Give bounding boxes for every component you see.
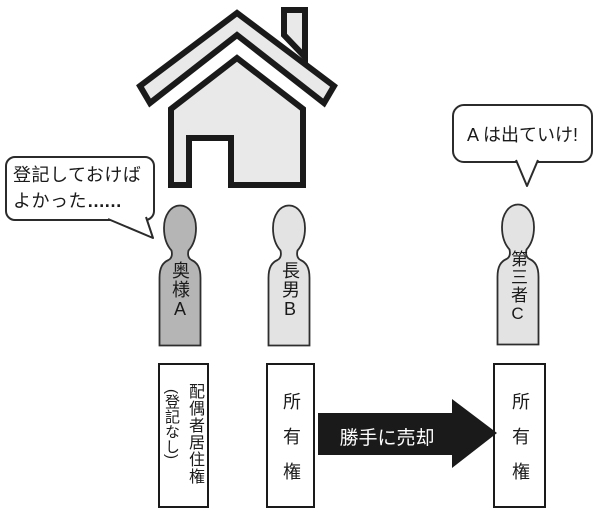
wife-bubble-line2: よかった……: [13, 188, 147, 214]
wife-bubble-line1: 登記しておけば: [13, 162, 147, 188]
third-party-bubble-text: A は出ていけ!: [467, 121, 578, 147]
house-body-shape: [171, 58, 303, 185]
house-icon: [140, 10, 334, 185]
roof-shape: [140, 13, 334, 103]
spousal-residence-right-box: 配偶者居住権 (登記なし): [158, 363, 209, 508]
eldest-son-label: 長男B: [277, 261, 303, 320]
third-party-label: 第三者C: [505, 250, 530, 324]
spousal-residence-right-line1: 配偶者居住権: [182, 365, 207, 506]
chimney-shape: [284, 10, 305, 57]
wife-label: 奥様A: [167, 261, 193, 320]
spousal-residence-right-text: 配偶者居住権 (登記なし): [160, 365, 207, 506]
wife-speech-bubble: 登記しておけば よかった……: [5, 156, 155, 221]
third-party-ownership-box: 所有権: [493, 363, 546, 508]
third-party-bubble-tail: [516, 160, 538, 186]
third-party-speech-bubble: A は出ていけ!: [452, 104, 593, 163]
son-ownership-box: 所有権: [266, 363, 315, 508]
spousal-residence-right-line2: (登記なし): [161, 365, 182, 506]
son-ownership-text: 所有権: [268, 365, 313, 506]
ellipsis-text: ……: [87, 191, 121, 211]
sale-arrow-label: 勝手に売却: [320, 423, 454, 450]
diagram-canvas: 登記しておけば よかった…… A は出ていけ! 配偶者居住権 (登記なし) 所有…: [0, 0, 600, 515]
third-party-ownership-text: 所有権: [495, 365, 544, 506]
wife-bubble-line2-text: よかった: [13, 191, 87, 211]
